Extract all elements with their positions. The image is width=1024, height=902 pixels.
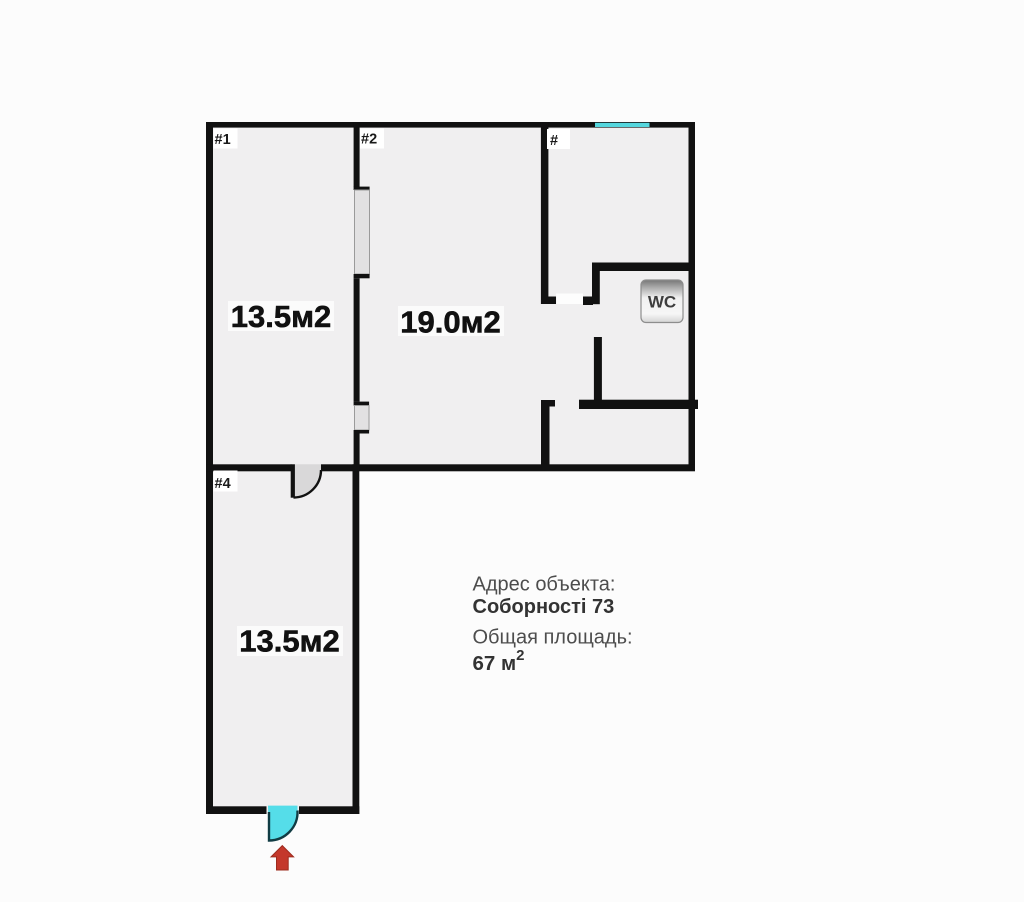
svg-text:Адрес объекта:: Адрес объекта: xyxy=(473,574,616,596)
svg-text:#1: #1 xyxy=(215,132,231,148)
svg-text:#: # xyxy=(550,133,558,149)
svg-text:WC: WC xyxy=(648,293,676,312)
svg-text:19.0м2: 19.0м2 xyxy=(400,304,501,339)
svg-text:13.5м2: 13.5м2 xyxy=(239,624,340,659)
svg-text:Соборності 73: Соборності 73 xyxy=(473,596,615,618)
svg-text:13.5м2: 13.5м2 xyxy=(231,299,332,334)
svg-text:#2: #2 xyxy=(361,132,377,148)
svg-text:Общая площадь:: Общая площадь: xyxy=(473,627,633,649)
svg-text:#4: #4 xyxy=(215,476,231,492)
